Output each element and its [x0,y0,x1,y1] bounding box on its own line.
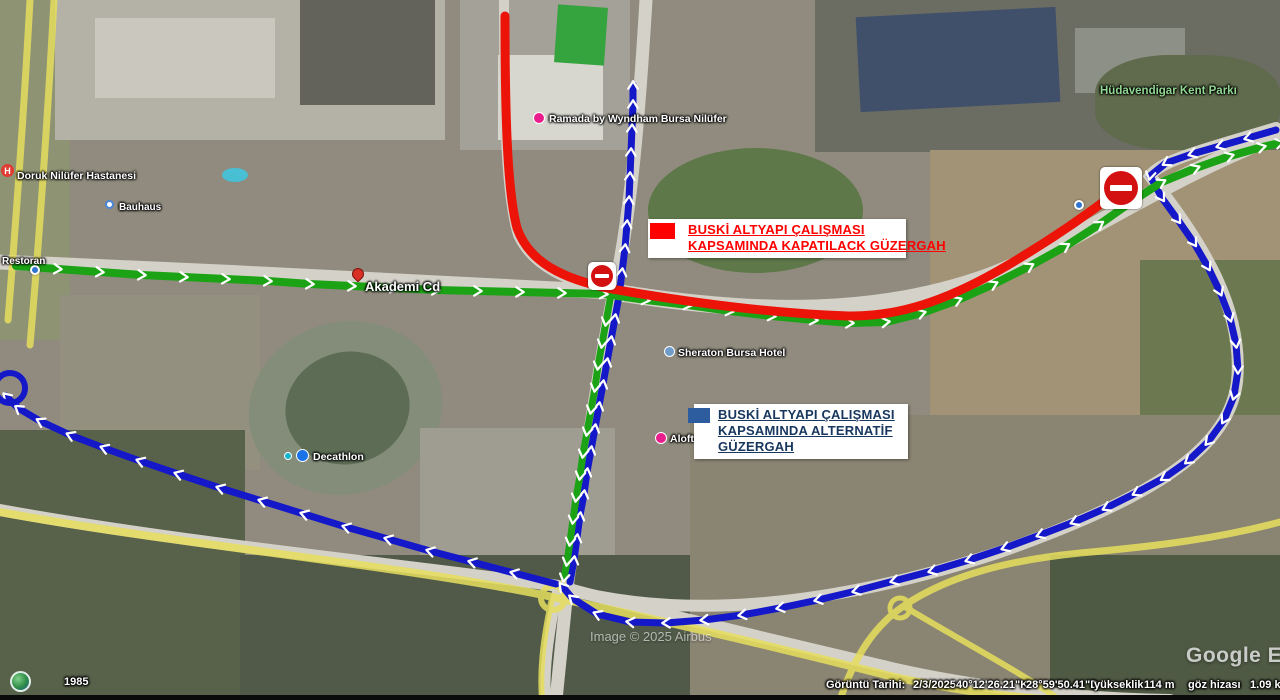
store-icon[interactable] [105,200,114,209]
no-entry-sign [1100,167,1142,209]
transit-stop-icon[interactable] [1074,200,1084,210]
hospital-icon[interactable]: H [1,164,14,177]
store-icon[interactable] [296,449,309,462]
place-label-restoran[interactable]: Restoran [2,256,45,267]
street-label-akademi-cd[interactable]: Akademi Cd [365,279,440,294]
closed-route-swatch [650,223,675,239]
status-date-label: Görüntü Tarihi: [826,679,905,691]
google-earth-watermark: Google Ea [1186,644,1280,668]
status-eye-alt-value: 1.09 k [1250,679,1280,691]
alternative-route-legend-line2: KAPSAMINDA ALTERNATİF [718,423,900,439]
no-entry-sign [588,262,616,290]
status-longitude: 28°59'50.41"D [1026,679,1098,691]
bottom-bar [0,695,1280,700]
place-label-hospital[interactable]: Doruk Nilüfer Hastanesi [17,170,136,182]
place-label-sheraton[interactable]: Sheraton Bursa Hotel [678,347,785,359]
poi-dot-icon[interactable] [284,452,292,460]
status-eye-alt-label: göz hizası [1188,679,1241,691]
alternative-route-swatch [688,408,710,423]
place-label-kent-park[interactable]: Hüdavendigar Kent Parkı [1100,85,1237,97]
closed-route-legend-line1: BUSKİ ALTYAPI ÇALIŞMASI [688,222,898,238]
place-label-bauhaus[interactable]: Bauhaus [119,202,161,213]
alternative-route-legend-line3: GÜZERGAH [718,439,900,455]
closed-route-legend: BUSKİ ALTYAPI ÇALIŞMASI KAPSAMINDA KAPAT… [648,219,906,258]
time-slider-icon[interactable] [10,671,31,692]
status-latitude: 40°12'26.21"K [956,679,1028,691]
alternative-route-legend-line1: BUSKİ ALTYAPI ÇALIŞMASI [718,407,900,423]
imagery-credit: Image © 2025 Airbus [590,629,712,644]
hotel-icon[interactable] [533,112,545,124]
hotel-icon[interactable] [664,346,675,357]
closed-route-legend-line2: KAPSAMINDA KAPATILACK GÜZERGAH [688,238,898,254]
road-network [0,0,1280,700]
hospital-icon-letter: H [4,166,11,176]
place-label-ramada[interactable]: Ramada by Wyndham Bursa Nilüfer [549,113,727,125]
place-label-decathlon[interactable]: Decathlon [313,451,364,463]
map-viewport[interactable]: H Doruk Nilüfer Hastanesi Bauhaus Restor… [0,0,1280,700]
status-altitude-value: 114 m [1144,679,1175,691]
history-year: 1985 [64,676,88,688]
alternative-route-legend: BUSKİ ALTYAPI ÇALIŞMASI KAPSAMINDA ALTER… [694,404,908,459]
status-altitude-label: yükseklik [1094,679,1144,691]
status-date-value: 2/3/2025 [913,679,956,691]
hotel-icon[interactable] [655,432,667,444]
route-overlay [0,0,1280,700]
